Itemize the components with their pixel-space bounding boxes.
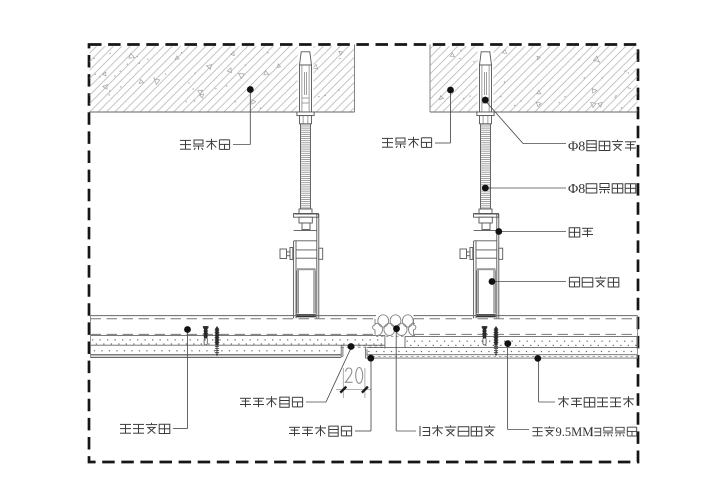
svg-text:Φ8: Φ8: [568, 182, 585, 197]
svg-text:Φ8: Φ8: [568, 139, 585, 154]
svg-text:9.5MM: 9.5MM: [556, 425, 594, 439]
